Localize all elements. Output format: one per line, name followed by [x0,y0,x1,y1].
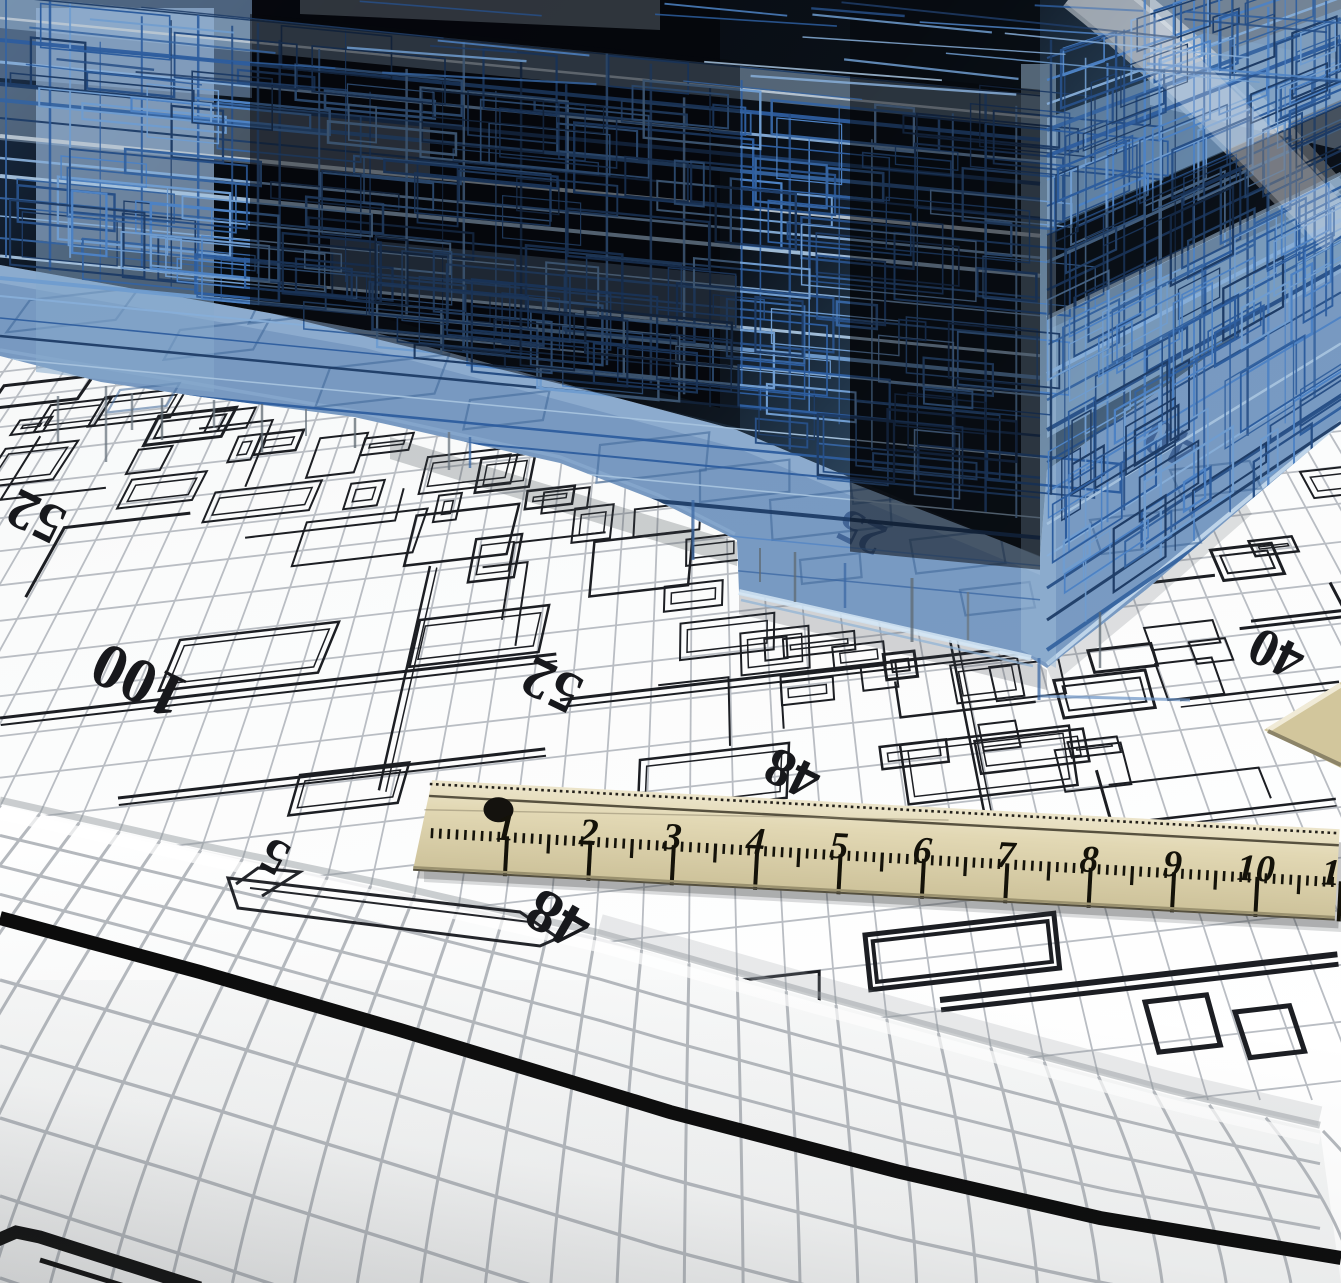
svg-text:8: 8 [1079,838,1100,881]
svg-text:11: 11 [1320,851,1341,895]
svg-text:6: 6 [912,829,933,872]
svg-text:10: 10 [1236,847,1276,891]
svg-text:5: 5 [828,825,849,868]
svg-text:1: 1 [495,807,516,850]
svg-text:4: 4 [744,820,766,863]
svg-text:9: 9 [1162,843,1183,886]
svg-text:2: 2 [577,811,599,854]
svg-text:3: 3 [661,816,683,859]
